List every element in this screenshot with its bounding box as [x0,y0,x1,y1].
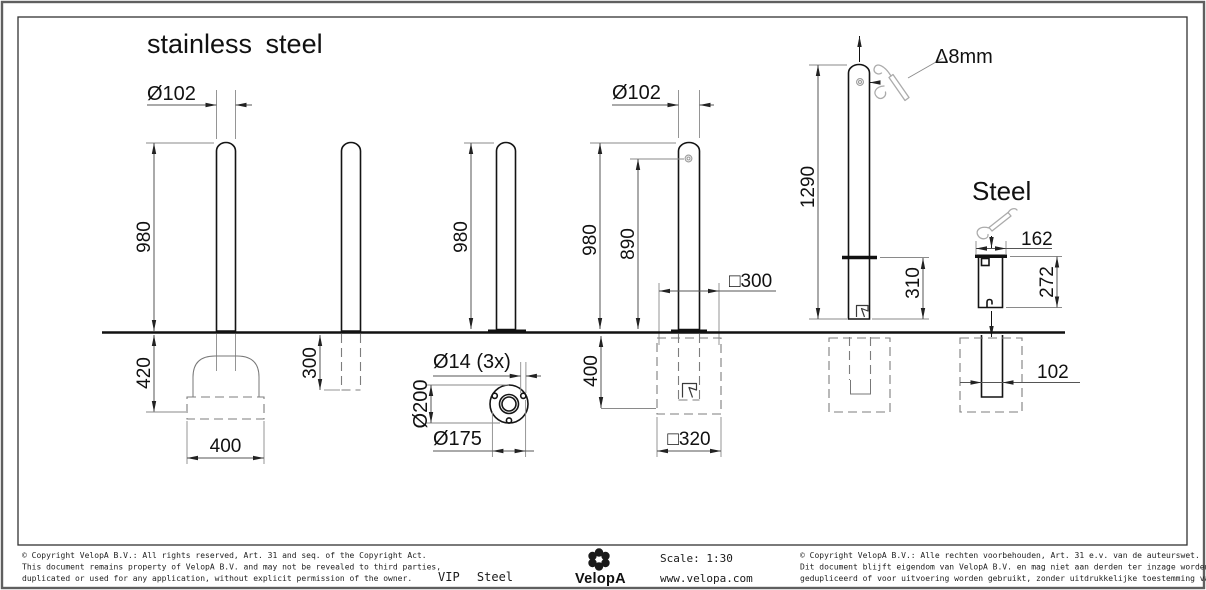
drawing-sheet: stainless steel Steel Ø102 980 420 400 [0,0,1206,590]
bolt-hole [492,393,497,398]
bollard-2-view: 300 [300,143,361,391]
bolt-hole [521,393,526,398]
scale-label: Scale: 1:30 [660,552,733,565]
dim-label-b4-lock-height: 890 [618,228,639,260]
velopa-flower-icon [588,548,609,570]
copyright-nl-line3: gedupliceerd of voor uitvoering worden g… [800,574,1206,583]
allen-key-icon [977,209,1017,239]
brand-logo-text: VelopA [575,571,626,587]
product-name: VIP Steel [438,570,513,584]
dim-label-b1-diameter: Ø102 [147,83,196,105]
dim-label-b3-height: 980 [451,221,472,253]
title-stainless-steel: stainless steel [147,29,323,59]
copyright-nl-line1: © Copyright VelopA B.V.: Alle rechten vo… [800,551,1200,560]
dim-label-b1-height: 980 [134,221,155,253]
dim-label-b4-foundation-width: □320 [667,429,710,450]
dim-label-steel-flange-width: 162 [1021,229,1053,250]
dim-label-b5-length: 1290 [798,166,819,208]
dim-label-flange-holes: Ø14 (3x) [433,351,511,373]
bolt-hole [506,418,511,423]
title-steel: Steel [972,176,1031,206]
website-label: www.velopa.com [660,572,753,585]
dim-label-b4-diameter: Ø102 [612,82,661,104]
dim-label-b5-key-size: Δ8mm [935,46,993,68]
bollard-5-removable-view: Δ8mm 1290 310 [798,36,993,412]
dim-label-steel-sleeve-depth: 272 [1037,266,1058,298]
anchor-mark-icon [683,384,697,398]
technical-drawing: stainless steel Steel Ø102 980 420 400 [0,0,1206,590]
copyright-en-line2: This document remains property of VelopA… [22,563,441,572]
dim-label-b1-depth: 420 [134,357,155,389]
footer: © Copyright VelopA B.V.: All rights rese… [22,548,1206,587]
bollard-4-view: Ø102 980 890 □300 400 □320 [580,82,776,457]
dim-label-b4-height: 980 [580,224,601,256]
copyright-nl-line2: Dit document blijft eigendom van VelopA … [800,563,1206,572]
bollard-3-view: 980 [451,143,526,332]
dim-label-steel-tube-dia: 102 [1037,362,1069,383]
steel-sleeve-view: 162 272 102 [960,209,1080,412]
dim-label-b4-pit-width: □300 [729,271,772,292]
copyright-en-line1: © Copyright VelopA B.V.: All rights rese… [22,551,427,560]
dim-label-flange-outer: Ø200 [410,380,432,429]
dim-label-b5-below-collar: 310 [903,267,924,299]
dim-label-b2-depth: 300 [300,347,321,379]
dim-label-b1-foundation-width: 400 [210,436,242,457]
bollard-1-view: Ø102 980 420 400 [134,83,264,464]
dim-label-b4-pit-depth: 400 [581,355,602,387]
copyright-en-line3: duplicated or used for any application, … [22,574,412,583]
dim-label-flange-bolt-circle: Ø175 [433,428,482,450]
flange-plan-view: Ø14 (3x) Ø200 Ø175 [410,351,541,457]
